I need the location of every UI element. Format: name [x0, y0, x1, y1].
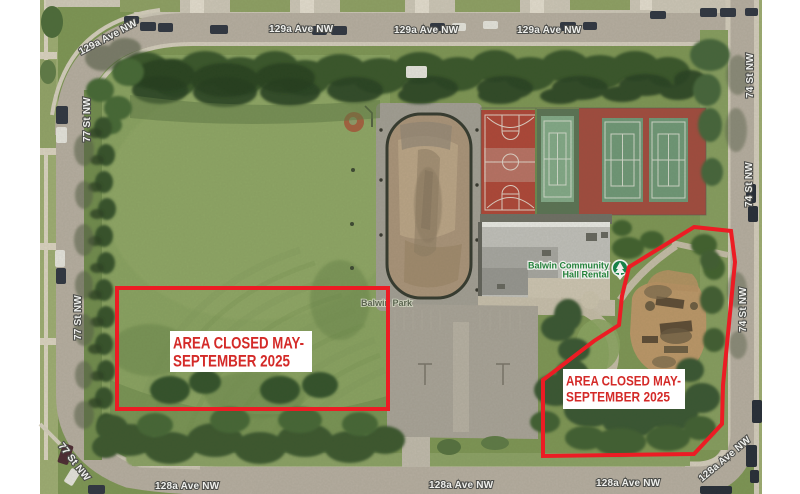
svg-text:SEPTEMBER 2025: SEPTEMBER 2025	[566, 389, 670, 405]
svg-text:AREA CLOSED MAY-: AREA CLOSED MAY-	[566, 373, 681, 389]
svg-text:SEPTEMBER 2025: SEPTEMBER 2025	[173, 353, 290, 371]
svg-text:AREA CLOSED MAY-: AREA CLOSED MAY-	[173, 335, 304, 353]
